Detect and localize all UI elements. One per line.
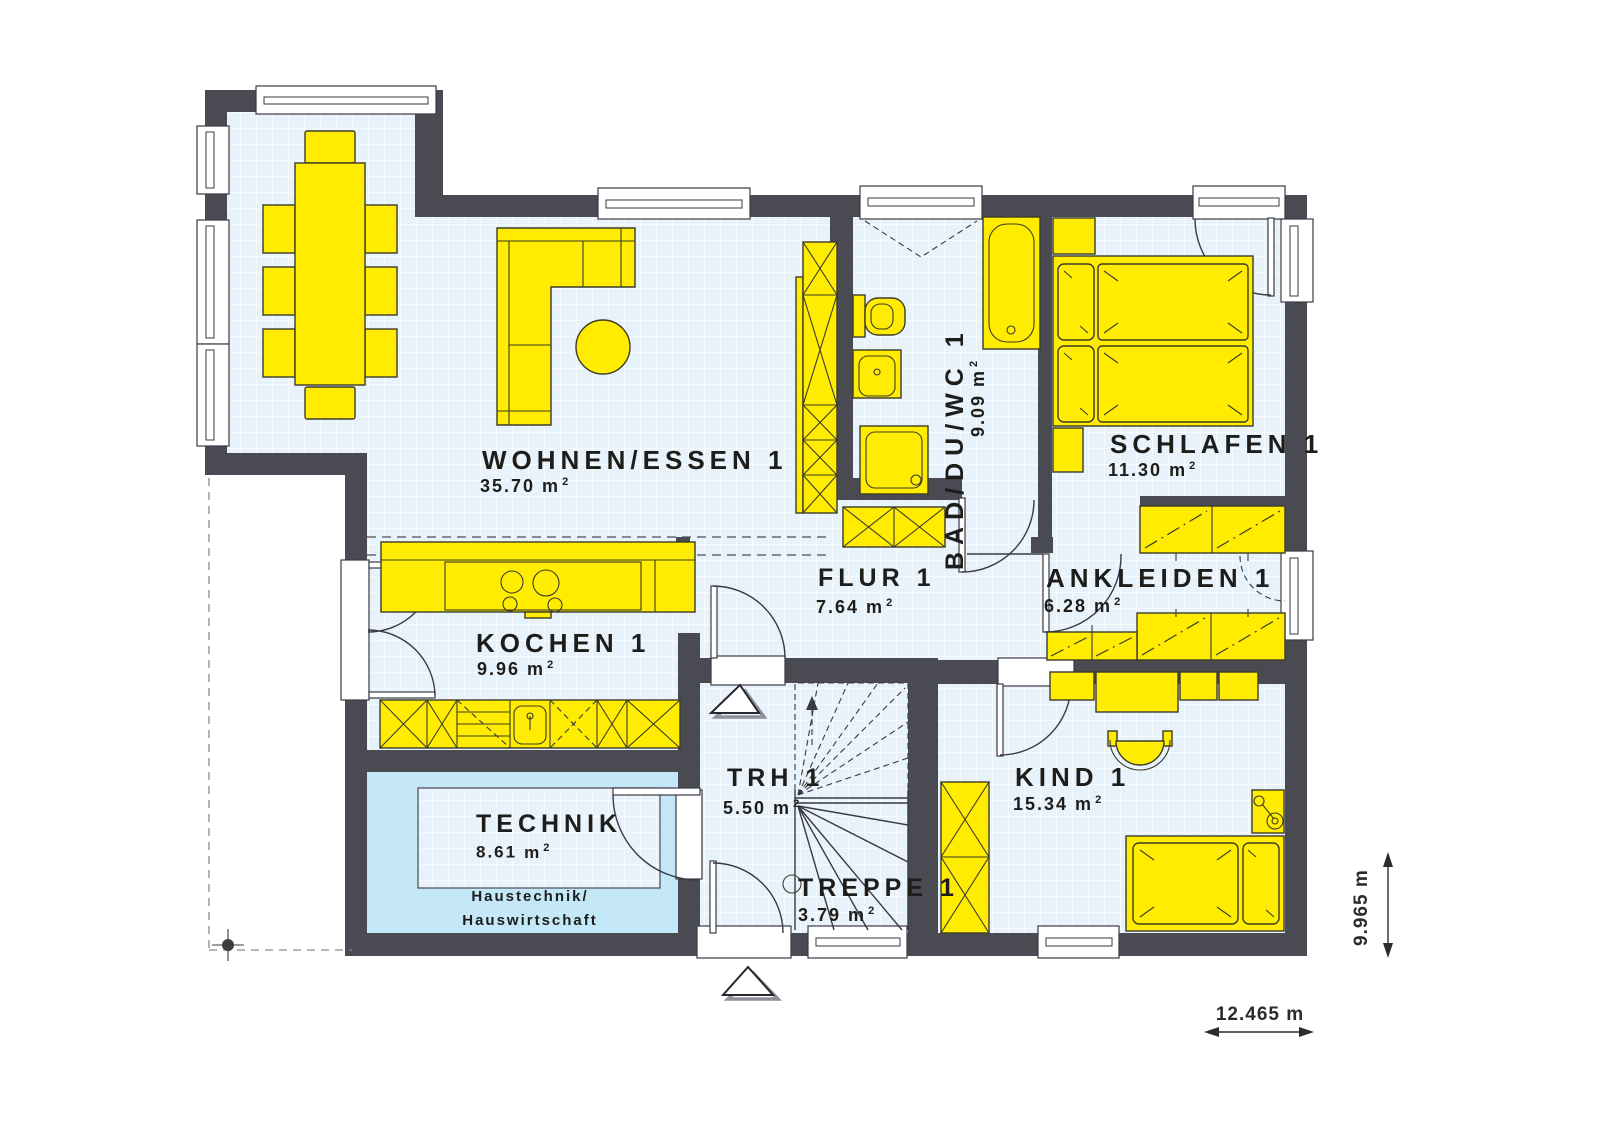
toilet	[853, 295, 905, 337]
shower	[860, 426, 928, 494]
technik-note-line2: Hauswirtschaft	[445, 913, 615, 928]
area-label-kochen: 9.96m2	[477, 660, 555, 678]
window-left-1	[197, 126, 229, 194]
window-child-bottom	[1038, 926, 1119, 958]
bath-sink	[853, 350, 901, 398]
area-label-kind: 15.34m2	[1013, 795, 1103, 813]
dimension-height-label: 9.965 m	[1352, 869, 1371, 946]
room-label-trh: TRH 1	[727, 766, 824, 791]
kitchen-island	[381, 542, 695, 618]
area-label-wohnen: 35.70m2	[480, 477, 570, 495]
bathtub	[983, 217, 1040, 349]
coffee-table	[576, 320, 630, 374]
area-label-ankleiden: 6.28m2	[1044, 597, 1122, 615]
dimension-arrow-width	[1204, 1027, 1314, 1037]
room-label-flur: FLUR 1	[818, 566, 936, 591]
property-line	[209, 478, 352, 950]
tall-cabinet	[796, 242, 837, 513]
window-left-2	[197, 220, 229, 344]
nightstand-lamp	[1252, 790, 1284, 833]
window-living-top	[598, 188, 750, 219]
room-label-ankleiden: ANKLEIDEN 1	[1046, 565, 1274, 591]
child-bed	[1126, 836, 1284, 931]
bedroom-wardrobe	[1140, 506, 1285, 561]
window-bedroom-right	[1281, 219, 1313, 302]
room-label-wohnen: WOHNEN/ESSEN 1	[482, 447, 788, 473]
area-label-trh: 5.50m2	[723, 799, 801, 817]
window-stair-bottom	[808, 926, 907, 958]
survey-point	[212, 929, 244, 961]
room-label-kochen: KOCHEN 1	[476, 630, 650, 656]
dimension-arrow-height	[1383, 852, 1393, 958]
area-label-flur: 7.64m2	[816, 598, 894, 616]
area-label-treppe: 3.79m2	[798, 906, 876, 924]
floor-plan-canvas: WOHNEN/ESSEN 1 35.70m2 KOCHEN 1 9.96m2 T…	[0, 0, 1600, 1132]
child-wardrobe	[941, 782, 989, 933]
kitchen-base-cabinets	[380, 700, 680, 748]
hall-cabinet	[843, 507, 945, 547]
area-label-technik: 8.61m2	[476, 843, 551, 861]
area-label-bad: 9.09m2	[969, 359, 987, 437]
window-dining-top	[256, 86, 436, 114]
room-label-bad: BAD/DU/WC 1	[943, 326, 968, 570]
room-label-schlafen: SCHLAFEN 1	[1110, 431, 1323, 457]
room-label-kind: KIND 1	[1015, 764, 1130, 790]
area-label-schlafen: 11.30m2	[1108, 461, 1197, 479]
floor-plan-drawing	[0, 0, 1600, 1132]
room-label-technik: TECHNIK	[476, 812, 622, 837]
technik-note-line1: Haustechnik/	[445, 889, 615, 904]
room-label-treppe: TREPPE 1	[798, 876, 959, 901]
entrance-marker-outer	[723, 967, 778, 999]
window-left-3	[197, 344, 229, 446]
dimension-width-label: 12.465 m	[1210, 1005, 1310, 1024]
